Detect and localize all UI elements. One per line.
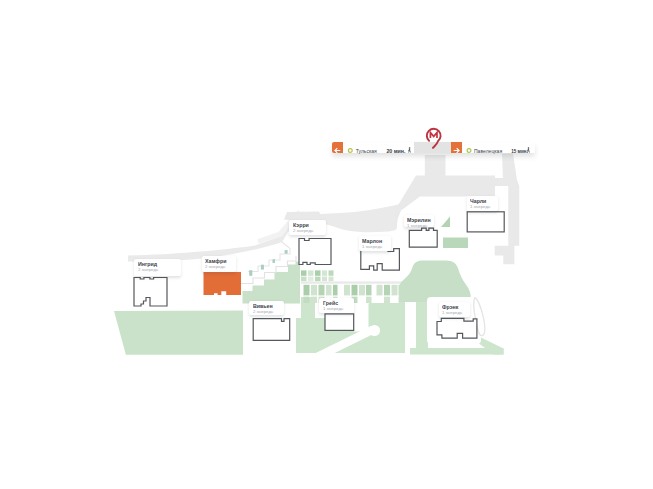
- svg-text:20 мин.: 20 мин.: [386, 148, 406, 154]
- svg-text:Тульская: Тульская: [356, 148, 377, 154]
- svg-text:15 мин.: 15 мин.: [511, 149, 528, 154]
- svg-text:Павелецкая: Павелецкая: [474, 148, 502, 154]
